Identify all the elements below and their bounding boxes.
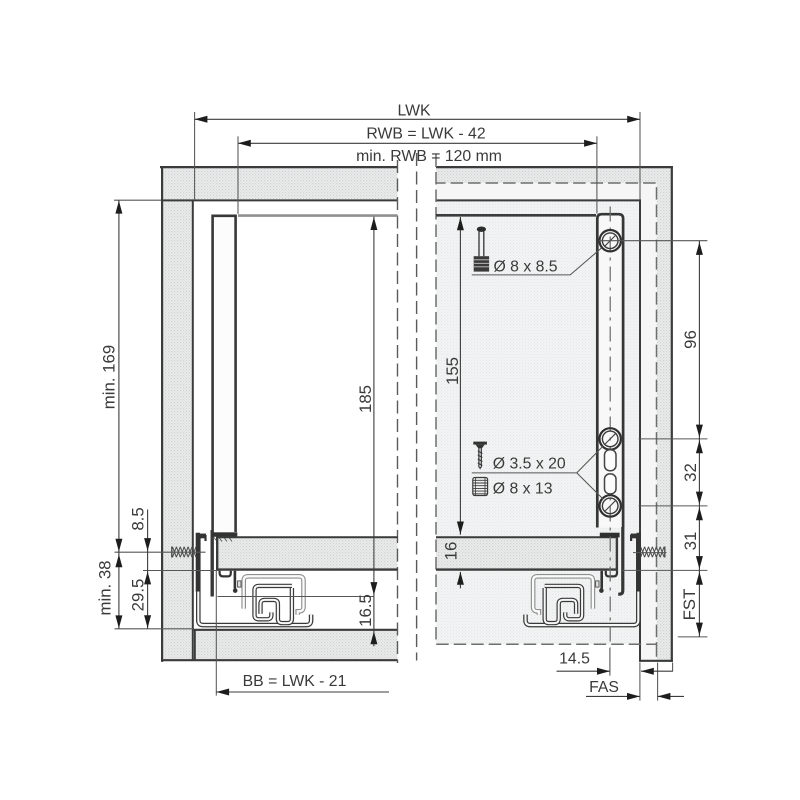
svg-text:min. 169: min. 169 — [100, 345, 119, 409]
svg-text:14.5: 14.5 — [559, 651, 590, 668]
svg-text:Ø 3.5 x 20: Ø 3.5 x 20 — [493, 456, 566, 473]
svg-text:16.5: 16.5 — [356, 594, 375, 627]
svg-text:32: 32 — [681, 463, 700, 482]
svg-text:Ø 8 x 8.5: Ø 8 x 8.5 — [494, 258, 558, 275]
svg-text:FST: FST — [680, 589, 699, 621]
svg-text:96: 96 — [681, 330, 700, 349]
svg-text:RWB = LWK - 42: RWB = LWK - 42 — [366, 126, 485, 143]
svg-text:BB = LWK - 21: BB = LWK - 21 — [243, 673, 347, 690]
svg-text:8.5: 8.5 — [129, 507, 148, 530]
svg-text:Ø 8 x 13: Ø 8 x 13 — [493, 481, 553, 498]
svg-text:16: 16 — [442, 542, 461, 561]
svg-text:LWK: LWK — [397, 103, 431, 120]
svg-text:min. 38: min. 38 — [96, 560, 115, 615]
svg-text:31: 31 — [681, 532, 700, 551]
svg-text:FAS: FAS — [589, 679, 619, 696]
svg-text:155: 155 — [443, 357, 462, 385]
svg-text:29.5: 29.5 — [129, 579, 148, 612]
svg-text:185: 185 — [356, 385, 375, 413]
svg-text:min. RWB = 120 mm: min. RWB = 120 mm — [356, 148, 502, 165]
